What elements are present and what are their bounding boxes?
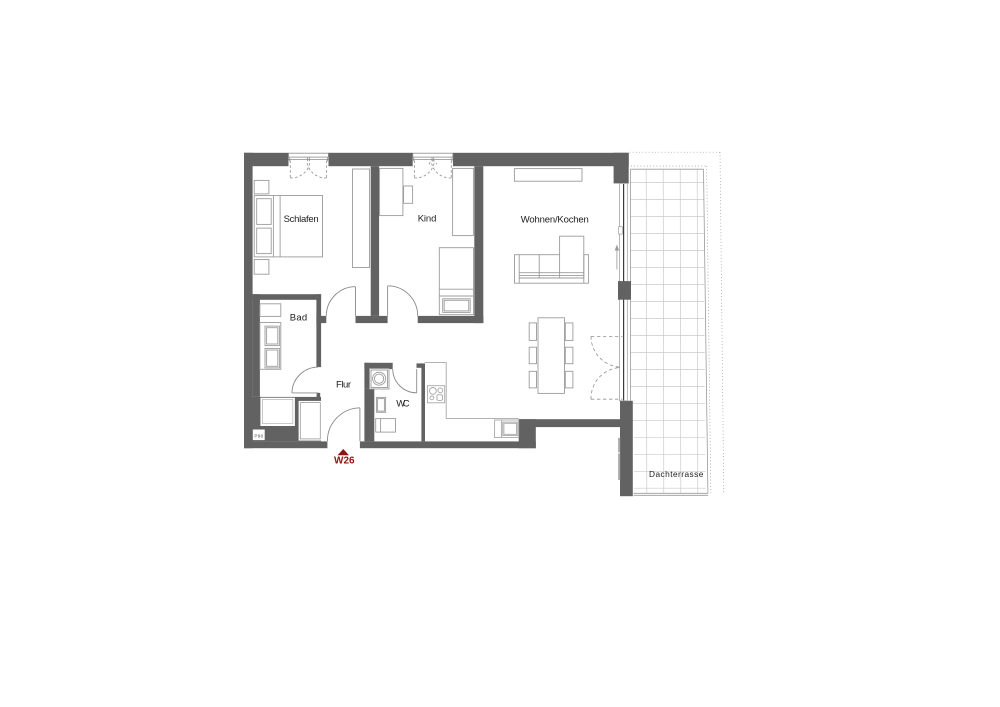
svg-text:P90: P90 [254,434,263,439]
svg-text:Wohnen/Kochen: Wohnen/Kochen [521,215,589,226]
svg-text:WC: WC [396,399,410,410]
svg-text:W26: W26 [334,456,355,467]
svg-text:Kind: Kind [418,213,437,224]
svg-text:Bad: Bad [290,312,308,323]
svg-text:Flur: Flur [336,380,351,391]
svg-text:Schlafen: Schlafen [284,214,319,225]
svg-text:Dachterrasse: Dachterrasse [649,469,704,479]
